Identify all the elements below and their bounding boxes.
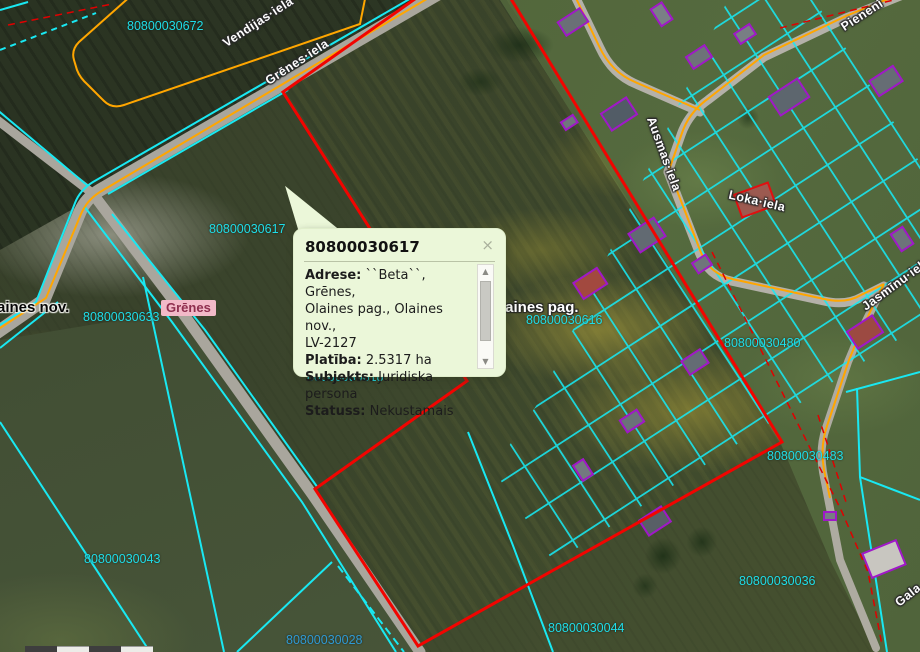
map-canvas[interactable]: 80800030672 80800030617 80800030633 8080… <box>0 0 920 652</box>
scrollbar-thumb[interactable] <box>480 281 491 341</box>
buildings-layer <box>558 2 914 577</box>
popup-line: Statuss: Nekustamais <box>305 403 473 420</box>
popup-title: 80800030617 <box>294 229 505 261</box>
popup-line: LV-2127 <box>305 335 473 352</box>
scroll-down-icon[interactable]: ▼ <box>478 355 493 368</box>
scroll-up-icon[interactable]: ▲ <box>478 265 493 278</box>
popup-line: Subjekts: Juridiska <box>305 369 473 386</box>
popup-body: Adrese: ``Beta``, Grēnes, Olaines pag., … <box>294 262 505 428</box>
map-scale-bar <box>25 646 153 652</box>
popup-line: Adrese: ``Beta``, Grēnes, <box>305 267 473 301</box>
red-outlined-building <box>734 183 776 218</box>
popup-line: Platība: 2.5317 ha <box>305 352 473 369</box>
close-icon[interactable]: × <box>481 238 494 253</box>
popup-scrollbar[interactable]: ▲ ▼ <box>477 264 494 369</box>
parcel-info-popup: 80800030617 × Adrese: ``Beta``, Grēnes, … <box>293 228 506 377</box>
popup-line: Olaines pag., Olaines nov., <box>305 301 473 335</box>
popup-line: persona <box>305 386 473 403</box>
